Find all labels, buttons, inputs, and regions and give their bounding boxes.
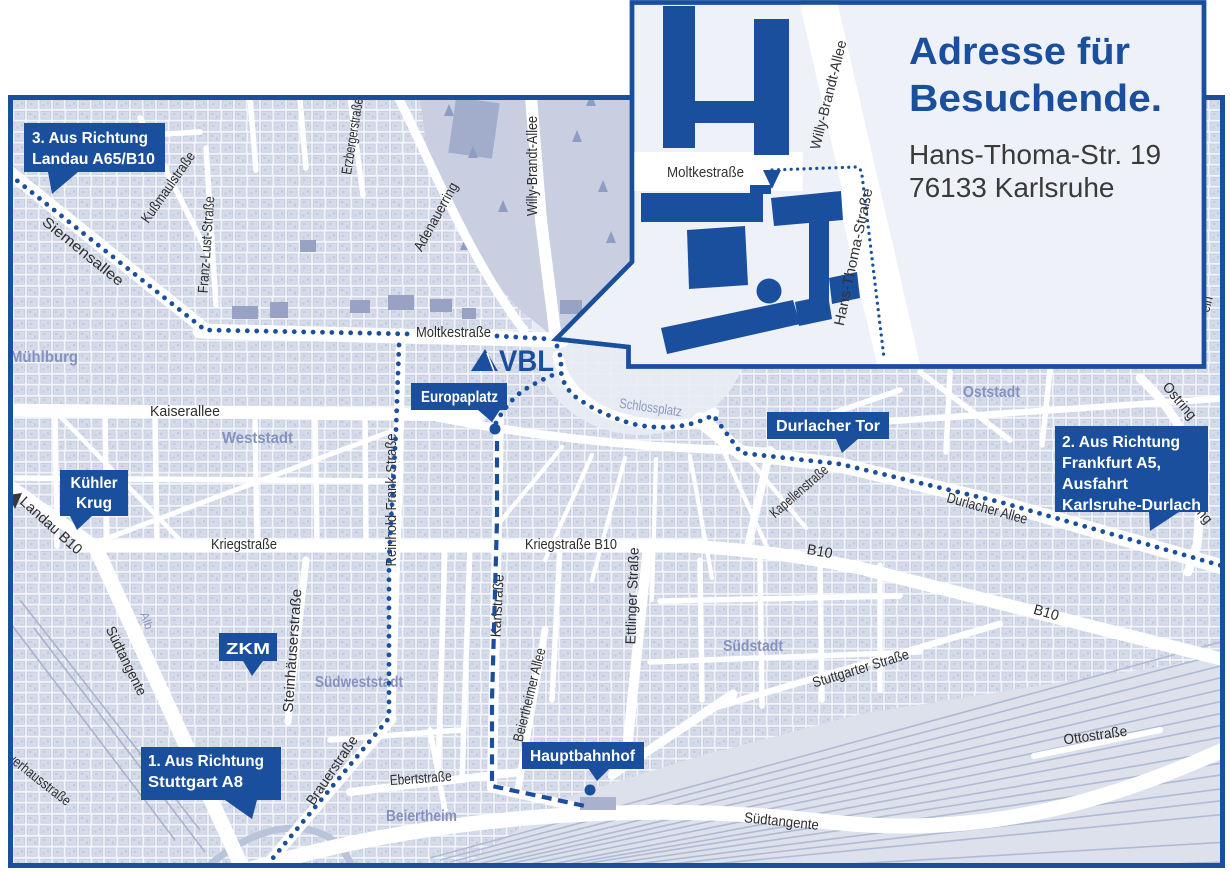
svg-text:Hans-Thoma-Str. 19: Hans-Thoma-Str. 19 [909,139,1161,170]
svg-text:Moltkestraße: Moltkestraße [416,325,491,341]
svg-text:3. Aus Richtung: 3. Aus Richtung [32,130,148,147]
svg-text:Durlacher Tor: Durlacher Tor [776,418,880,435]
svg-text:Beiertheim: Beiertheim [386,808,457,825]
svg-text:Südstadt: Südstadt [723,638,783,655]
svg-text:ZKM: ZKM [226,641,270,658]
svg-text:Hauptbahnhof: Hauptbahnhof [530,748,636,765]
svg-text:76133 Karlsruhe: 76133 Karlsruhe [909,172,1114,203]
svg-text:Ausfahrt: Ausfahrt [1062,476,1128,493]
svg-text:Weststadt: Weststadt [222,430,293,447]
svg-text:2. Aus Richtung: 2. Aus Richtung [1062,434,1180,451]
svg-text:Krug: Krug [76,495,112,512]
svg-text:Kriegstraße: Kriegstraße [211,537,277,553]
svg-text:Landau A65/B10: Landau A65/B10 [32,151,155,168]
svg-text:Frankfurt A5,: Frankfurt A5, [1062,455,1161,472]
svg-text:Ettlinger Straße: Ettlinger Straße [623,547,642,644]
svg-text:Europaplatz: Europaplatz [421,389,498,406]
svg-text:Oststadt: Oststadt [963,384,1020,401]
svg-text:Moltkestraße: Moltkestraße [667,165,744,181]
svg-text:VBL: VBL [499,345,554,378]
svg-text:Stuttgart A8: Stuttgart A8 [148,774,243,791]
svg-text:Reinhold-Frank-Straße: Reinhold-Frank-Straße [384,434,400,567]
svg-text:Karlstraße: Karlstraße [488,574,507,638]
svg-text:1. Aus Richtung: 1. Aus Richtung [148,753,264,770]
svg-text:Adresse für: Adresse für [909,31,1130,73]
svg-text:Mühlburg: Mühlburg [10,349,78,366]
svg-text:Kaiserallee: Kaiserallee [150,404,220,420]
svg-text:Willy-Brandt-Allee: Willy-Brandt-Allee [525,116,541,216]
svg-text:Karlsruhe-Durlach: Karlsruhe-Durlach [1062,497,1201,514]
svg-text:Kriegstraße B10: Kriegstraße B10 [525,537,617,553]
svg-text:Besuchende.: Besuchende. [909,78,1162,120]
svg-text:Kühler: Kühler [71,475,118,492]
